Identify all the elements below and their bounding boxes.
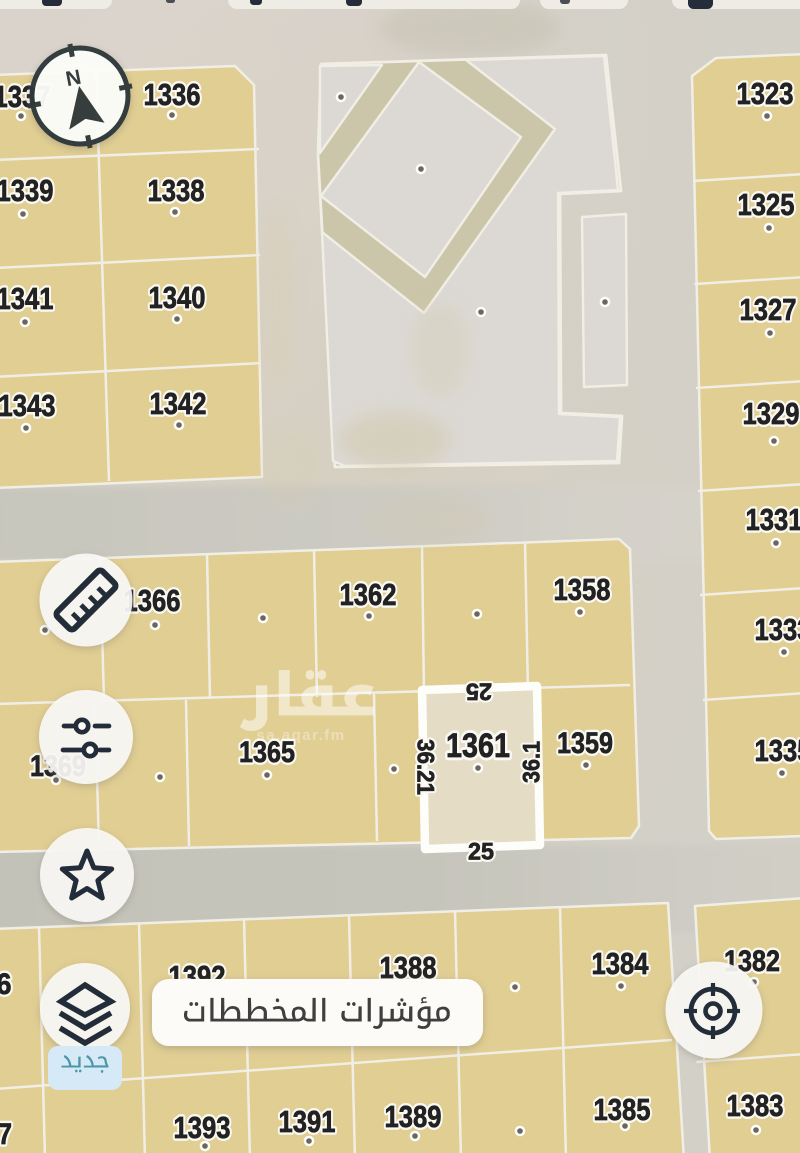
svg-text:1359: 1359 xyxy=(557,727,613,760)
svg-text:1333: 1333 xyxy=(755,612,800,647)
svg-text:sa.aqar.fm: sa.aqar.fm xyxy=(256,727,345,744)
svg-text:1331: 1331 xyxy=(746,502,800,537)
svg-text:1336: 1336 xyxy=(144,77,201,112)
svg-text:1323: 1323 xyxy=(737,76,794,111)
svg-text:1325: 1325 xyxy=(738,187,795,222)
svg-text:1329: 1329 xyxy=(743,396,800,431)
svg-text:1361: 1361 xyxy=(446,727,510,765)
svg-text:1343: 1343 xyxy=(0,388,56,423)
svg-text:1341: 1341 xyxy=(0,281,54,316)
svg-text:97: 97 xyxy=(0,1118,12,1151)
svg-text:1339: 1339 xyxy=(0,173,54,208)
svg-text:1362: 1362 xyxy=(340,577,397,612)
svg-text:36.1: 36.1 xyxy=(519,741,546,783)
svg-text:1358: 1358 xyxy=(554,572,611,607)
svg-text:1393: 1393 xyxy=(174,1110,231,1145)
svg-text:1383: 1383 xyxy=(727,1088,784,1123)
svg-text:1391: 1391 xyxy=(279,1104,336,1139)
svg-text:1335: 1335 xyxy=(755,733,800,768)
svg-text:1338: 1338 xyxy=(148,173,205,208)
svg-text:6: 6 xyxy=(0,968,12,1001)
svg-text:1384: 1384 xyxy=(592,946,650,981)
svg-text:36.21: 36.21 xyxy=(411,739,438,795)
svg-text:25: 25 xyxy=(468,839,494,866)
svg-text:25: 25 xyxy=(466,677,492,704)
svg-text:1340: 1340 xyxy=(149,280,206,315)
svg-text:1342: 1342 xyxy=(150,386,207,421)
svg-text:1327: 1327 xyxy=(740,292,797,327)
svg-text:1389: 1389 xyxy=(385,1099,442,1134)
